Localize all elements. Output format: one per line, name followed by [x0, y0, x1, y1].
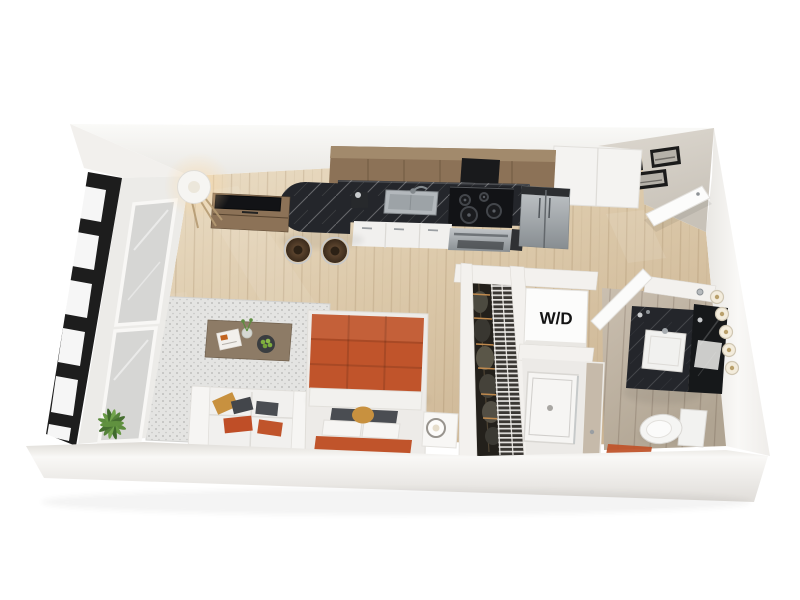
floorplan-image: W/D [0, 0, 800, 600]
stove-cooktop [448, 186, 514, 228]
coffee-maker [350, 192, 369, 209]
bar-stool [322, 238, 349, 265]
laundry-closet: W/D [524, 288, 588, 347]
lower-cabinets [352, 221, 452, 249]
ground-shadow [41, 489, 751, 515]
fruit-bowl [257, 335, 275, 353]
refrigerator [519, 186, 570, 249]
coffee-table [205, 318, 292, 361]
nightstand [422, 412, 458, 448]
bar-stool [285, 237, 312, 264]
bathroom-door [582, 362, 604, 456]
wd-label: W/D [539, 309, 572, 329]
oven [448, 228, 512, 252]
shower-drain [547, 405, 553, 411]
faucet [662, 328, 668, 334]
round-cushion [352, 407, 374, 424]
door-knob [696, 192, 700, 196]
studio-floorplan-3d: W/D [0, 0, 800, 600]
duvet-fold [309, 388, 422, 410]
vanity-sink [642, 328, 686, 372]
sofa-armrest [188, 386, 210, 450]
soundbar [242, 212, 258, 213]
door-handle [590, 430, 594, 434]
mirrored-sink-reflection [694, 340, 722, 370]
duvet [309, 314, 424, 392]
door-stop [697, 289, 703, 295]
sofa [188, 386, 312, 452]
